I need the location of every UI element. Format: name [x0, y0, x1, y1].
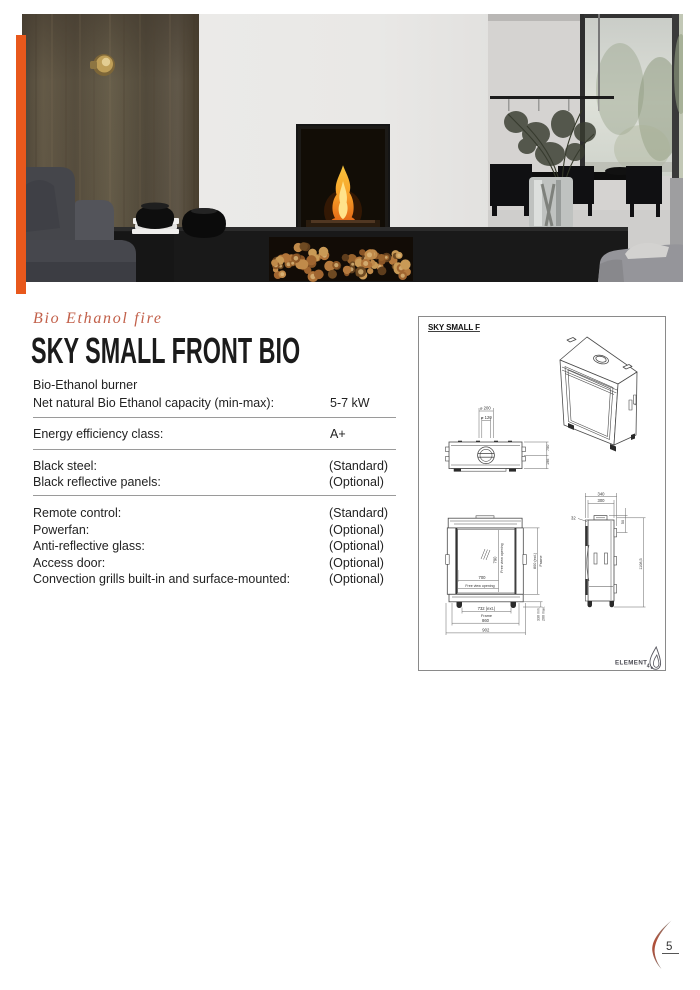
svg-text:902: 902	[482, 628, 490, 633]
svg-text:4: 4	[647, 664, 650, 670]
svg-text:340: 340	[598, 492, 606, 497]
svg-text:750: 750	[546, 445, 550, 451]
svg-text:700: 700	[479, 575, 487, 580]
svg-text:732 (ext.): 732 (ext.)	[478, 606, 496, 611]
svg-text:196: 196	[546, 459, 550, 465]
svg-text:32: 32	[571, 516, 576, 521]
svg-text:Free view opening: Free view opening	[500, 543, 504, 572]
svg-text:Free view opening: Free view opening	[465, 584, 494, 588]
svg-text:200 max.: 200 max.	[542, 606, 546, 621]
svg-text:ELEMENT: ELEMENT	[615, 660, 647, 667]
svg-text:300: 300	[598, 498, 606, 503]
svg-text:50: 50	[621, 520, 625, 524]
svg-text:330 min.: 330 min.	[537, 607, 541, 621]
svg-text:800 (ext.): 800 (ext.)	[533, 552, 537, 569]
svg-text:⌀ 200: ⌀ 200	[480, 406, 491, 411]
svg-text:790: 790	[492, 556, 497, 564]
svg-text:860: 860	[482, 618, 490, 623]
svg-text:SKY SMALL F: SKY SMALL F	[428, 323, 480, 332]
svg-text:Frame: Frame	[539, 556, 543, 567]
svg-text:1108,5: 1108,5	[639, 558, 643, 569]
svg-text:⌀ 120: ⌀ 120	[481, 415, 492, 420]
